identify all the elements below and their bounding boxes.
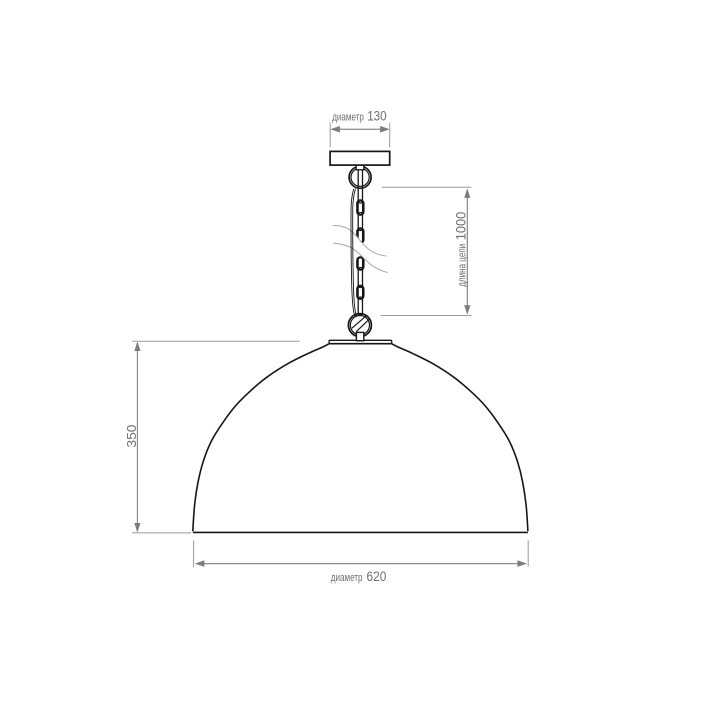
- svg-text:длина цепи: длина цепи: [456, 244, 468, 287]
- svg-text:130: 130: [367, 109, 387, 124]
- svg-text:диаметр: диаметр: [332, 112, 364, 124]
- svg-text:620: 620: [367, 569, 387, 584]
- svg-text:диаметр: диаметр: [331, 572, 363, 584]
- svg-text:350: 350: [124, 425, 139, 448]
- svg-text:1000: 1000: [453, 212, 468, 241]
